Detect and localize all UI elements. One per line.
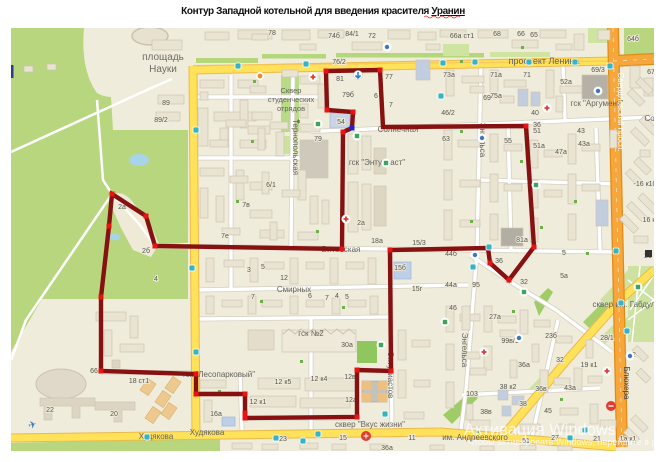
svg-text:79: 79 xyxy=(314,136,322,143)
svg-text:66: 66 xyxy=(517,31,525,38)
svg-text:36: 36 xyxy=(495,258,503,265)
svg-text:6/1: 6/1 xyxy=(266,182,276,189)
svg-text:гск №2: гск №2 xyxy=(298,329,324,338)
svg-text:81а: 81а xyxy=(516,237,528,244)
svg-text:отрядов: отрядов xyxy=(277,104,305,113)
svg-text:Блюхера: Блюхера xyxy=(622,367,631,401)
svg-text:68: 68 xyxy=(493,31,501,38)
svg-text:32: 32 xyxy=(520,279,528,286)
svg-text:4: 4 xyxy=(335,293,339,300)
svg-text:71: 71 xyxy=(523,72,531,79)
svg-text:5а: 5а xyxy=(560,273,568,280)
svg-text:7: 7 xyxy=(325,295,329,302)
svg-text:15: 15 xyxy=(339,435,347,442)
svg-text:Худякова: Худякова xyxy=(190,428,225,437)
svg-text:36а: 36а xyxy=(381,445,393,452)
svg-text:студенческих: студенческих xyxy=(268,95,315,104)
svg-text:36а: 36а xyxy=(518,362,530,369)
svg-text:23б: 23б xyxy=(545,332,557,340)
svg-text:38 к2: 38 к2 xyxy=(500,384,517,391)
svg-text:6: 6 xyxy=(374,93,378,100)
svg-text:66: 66 xyxy=(90,368,98,375)
svg-text:Смирных: Смирных xyxy=(277,285,311,294)
svg-text:12в: 12в xyxy=(344,374,356,381)
svg-text:23: 23 xyxy=(279,436,287,443)
svg-text:2а: 2а xyxy=(118,204,126,211)
svg-text:71а: 71а xyxy=(490,72,502,79)
svg-text:7е: 7е xyxy=(221,233,229,240)
svg-text:27а: 27а xyxy=(489,314,501,321)
svg-text:18а: 18а xyxy=(371,238,383,245)
svg-text:Свердловский просп.: Свердловский просп. xyxy=(616,72,625,151)
svg-text:15/3: 15/3 xyxy=(412,240,426,247)
svg-text:75а: 75а xyxy=(490,93,502,100)
svg-text:15б: 15б xyxy=(394,264,406,272)
svg-text:5: 5 xyxy=(261,264,265,271)
svg-text:55: 55 xyxy=(504,138,512,145)
svg-text:12 к5: 12 к5 xyxy=(275,379,292,386)
svg-text:Контур Западной котельной для: Контур Западной котельной для введения к… xyxy=(181,6,465,17)
svg-text:95: 95 xyxy=(472,282,480,289)
svg-text:47а: 47а xyxy=(555,149,567,156)
svg-text:гск "Энтузиаст": гск "Энтузиаст" xyxy=(349,158,405,167)
svg-text:12: 12 xyxy=(280,275,288,282)
svg-text:площадь: площадь xyxy=(142,52,184,63)
svg-text:51а: 51а xyxy=(533,143,545,150)
svg-text:52а: 52а xyxy=(560,79,572,86)
svg-text:46/2: 46/2 xyxy=(441,110,455,117)
svg-text:69: 69 xyxy=(483,95,491,102)
svg-text:89: 89 xyxy=(162,100,170,107)
svg-text:64б: 64б xyxy=(627,35,639,43)
svg-text:79б: 79б xyxy=(342,91,354,99)
svg-text:43: 43 xyxy=(577,128,585,135)
svg-text:2б: 2б xyxy=(142,247,150,255)
svg-text:65: 65 xyxy=(530,32,538,39)
svg-text:73а: 73а xyxy=(443,72,455,79)
svg-text:Энгельса: Энгельса xyxy=(460,333,469,368)
svg-text:30а: 30а xyxy=(341,342,353,349)
svg-text:67: 67 xyxy=(647,69,655,76)
svg-text:54: 54 xyxy=(337,119,345,126)
svg-text:45: 45 xyxy=(544,408,552,415)
svg-text:20: 20 xyxy=(110,411,118,418)
svg-text:103: 103 xyxy=(466,391,478,398)
svg-text:43а: 43а xyxy=(578,141,590,148)
svg-text:Науки: Науки xyxy=(149,64,177,75)
svg-text:3: 3 xyxy=(247,267,251,274)
svg-text:32: 32 xyxy=(556,357,564,364)
svg-text:4: 4 xyxy=(154,276,158,283)
svg-text:38: 38 xyxy=(519,401,527,408)
svg-text:Чтобы активировать Windows, пе: Чтобы активировать Windows, перейдите в … xyxy=(468,437,664,447)
svg-text:6: 6 xyxy=(308,293,312,300)
svg-text:51: 51 xyxy=(533,128,541,135)
svg-text:74б: 74б xyxy=(328,32,340,40)
svg-text:сквер "Вкус жизни": сквер "Вкус жизни" xyxy=(335,420,405,429)
svg-text:76/2: 76/2 xyxy=(332,59,346,66)
svg-text:18 ст1: 18 ст1 xyxy=(129,378,149,385)
svg-text:7: 7 xyxy=(389,102,393,109)
svg-text:44а: 44а xyxy=(445,282,457,289)
svg-text:89/2: 89/2 xyxy=(154,117,168,124)
svg-text:16а: 16а xyxy=(210,411,222,418)
svg-text:69/3: 69/3 xyxy=(591,67,605,74)
svg-text:28/1: 28/1 xyxy=(600,335,614,342)
svg-text:44б: 44б xyxy=(445,250,457,258)
svg-text:Тернопольская: Тернопольская xyxy=(291,119,300,175)
svg-text:36в: 36в xyxy=(535,386,547,393)
svg-text:12 к1: 12 к1 xyxy=(250,399,267,406)
svg-text:5: 5 xyxy=(562,250,566,257)
svg-text:проспект Ленина: проспект Ленина xyxy=(509,56,580,66)
svg-text:43а: 43а xyxy=(564,385,576,392)
svg-text:19 к1: 19 к1 xyxy=(581,362,598,369)
svg-text:-16 к10: -16 к10 xyxy=(634,181,657,188)
svg-text:Сквер: Сквер xyxy=(281,86,302,95)
svg-text:63: 63 xyxy=(442,136,450,143)
svg-text:77: 77 xyxy=(385,74,393,81)
svg-text:гск "Аргумент": гск "Аргумент" xyxy=(571,99,624,108)
svg-text:72: 72 xyxy=(368,33,376,40)
svg-text:2а: 2а xyxy=(357,220,365,227)
svg-text:46: 46 xyxy=(449,305,457,312)
svg-text:22: 22 xyxy=(46,407,54,414)
svg-text:84/1: 84/1 xyxy=(345,31,359,38)
svg-text:66а ст1: 66а ст1 xyxy=(450,33,474,40)
svg-text:15г: 15г xyxy=(412,286,423,293)
svg-text:7в: 7в xyxy=(242,202,250,209)
svg-text:78: 78 xyxy=(268,30,276,37)
svg-text:11: 11 xyxy=(408,435,415,442)
svg-text:38в: 38в xyxy=(480,409,492,416)
svg-text:40: 40 xyxy=(531,110,539,117)
svg-text:7: 7 xyxy=(251,294,255,301)
svg-text:5: 5 xyxy=(345,294,349,301)
svg-text:81: 81 xyxy=(336,76,344,83)
svg-text:12 к4: 12 к4 xyxy=(311,376,328,383)
